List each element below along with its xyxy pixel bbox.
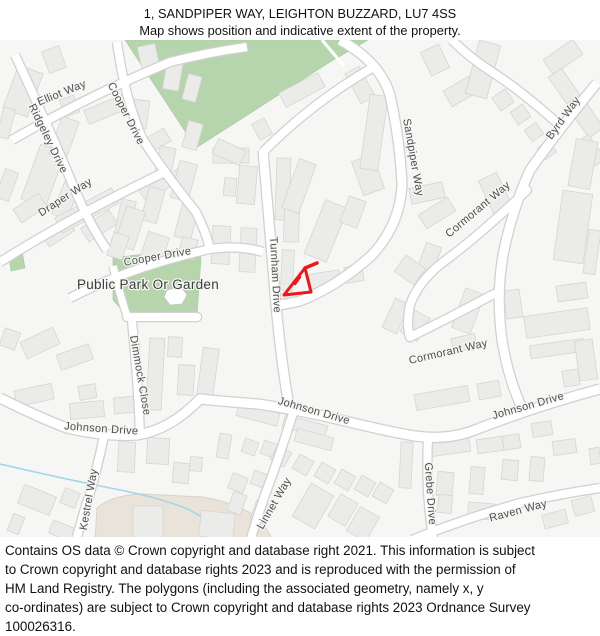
building [469,466,485,494]
map-svg: Elliot WayRidgeley DriveCooper DriveDrap… [0,40,600,537]
copyright-line-5: 100026316. [5,617,595,636]
building [589,447,600,464]
building [199,510,236,537]
building [531,421,553,438]
copyright-line-3: HM Land Registry. The polygons (includin… [5,579,595,598]
building [117,442,136,473]
building [529,456,545,481]
park-label: Public Park Or Garden [77,277,219,292]
building [172,462,190,483]
page-title: 1, SANDPIPER WAY, LEIGHTON BUZZARD, LU7 … [0,5,600,22]
building [399,442,413,489]
building [236,165,257,204]
map-title-block: 1, SANDPIPER WAY, LEIGHTON BUZZARD, LU7 … [0,0,600,40]
building [436,471,454,496]
building [177,365,195,396]
building [69,401,104,420]
building [562,369,580,387]
copyright-footer: Contains OS data © Crown copyright and d… [0,537,600,636]
copyright-line-2: to Crown copyright and database rights 2… [5,560,595,579]
building [502,434,521,450]
building [146,437,169,464]
copyright-line-4: co-ordinates) are subject to Crown copyr… [5,598,595,617]
page-subtitle: Map shows position and indicative extent… [0,22,600,39]
building [503,289,523,319]
map-canvas: Elliot WayRidgeley DriveCooper DriveDrap… [0,40,600,537]
building [501,459,519,480]
building [133,506,163,537]
building [477,380,501,400]
building [437,494,453,513]
building [189,457,202,472]
building [552,438,577,455]
building [167,337,182,358]
copyright-line-1: Contains OS data © Crown copyright and d… [5,541,595,560]
building [78,384,97,401]
building [223,178,237,197]
